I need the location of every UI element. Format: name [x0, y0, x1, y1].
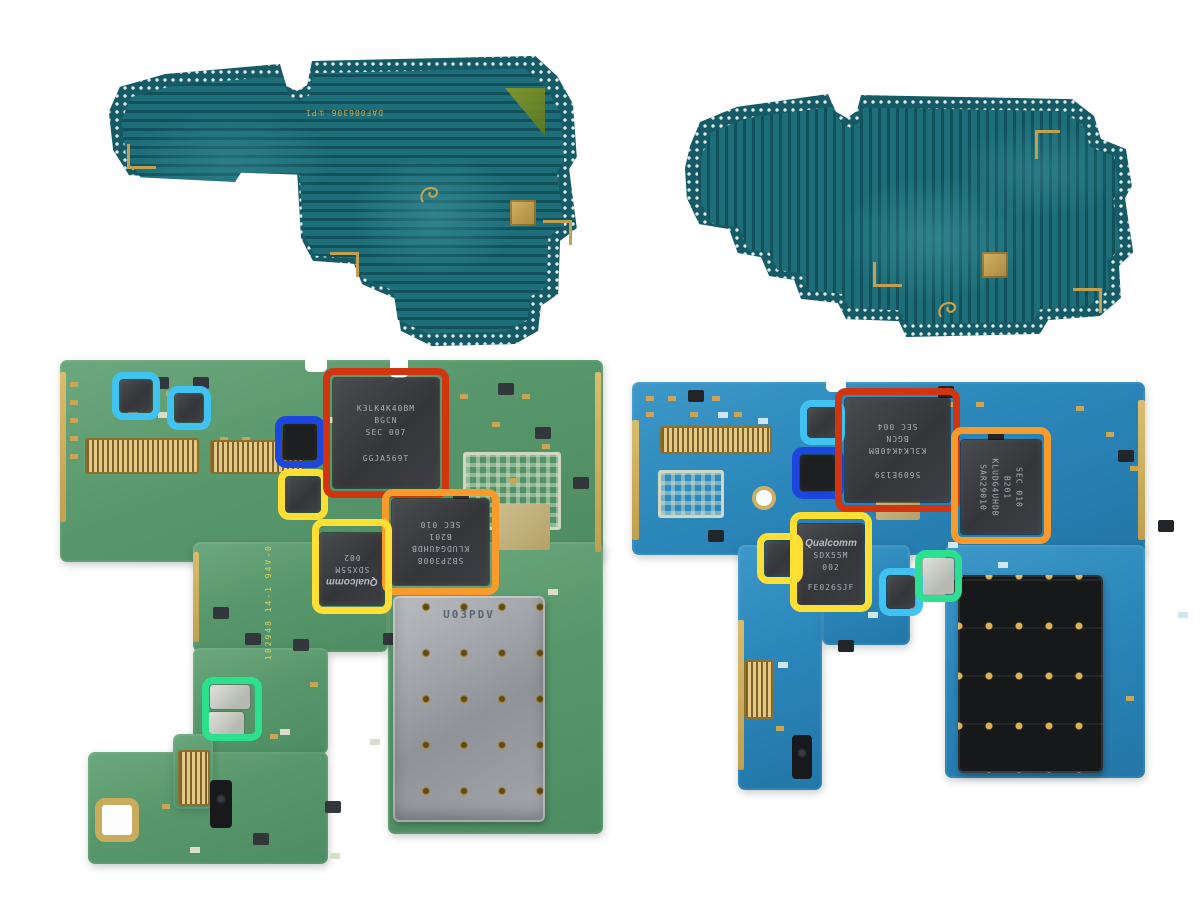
highlight-cyan-2-left	[167, 386, 211, 430]
sim-reader-right	[958, 575, 1103, 773]
camera-module	[792, 735, 812, 779]
highlight-green-left	[202, 677, 262, 741]
corner-bracket	[1073, 288, 1102, 313]
corner-bracket	[543, 220, 572, 245]
corner-bracket	[873, 262, 902, 287]
shield-can-frame	[658, 470, 724, 518]
b2b-connector	[85, 438, 199, 474]
board-edge-notch	[305, 356, 327, 372]
highlight-yellow-large-right	[790, 512, 872, 612]
pcb-trace-area	[118, 65, 570, 337]
b2b-connector	[178, 750, 210, 806]
gold-pad	[498, 504, 550, 550]
gold-plated-edge	[60, 372, 66, 522]
gold-plated-edge	[595, 372, 601, 552]
b2b-connector	[744, 660, 774, 719]
component-scatter	[70, 382, 78, 387]
highlight-yellow-large-left	[312, 519, 392, 614]
corner-bracket	[330, 252, 359, 277]
pcb-trace-area	[698, 103, 1127, 329]
shield-pcb-left: DAF006306 ①P1	[105, 52, 583, 350]
component-scatter	[688, 390, 704, 402]
corner-bracket	[127, 144, 156, 169]
samsung-swoosh-logo-icon	[933, 295, 963, 325]
gold-plated-edge	[632, 420, 639, 540]
motherboard-right: 5609E139 K3LK4K40BM BGCN SEC 004 SEC 010…	[628, 360, 1148, 800]
highlight-green-right	[915, 550, 962, 602]
gold-pad	[982, 252, 1008, 278]
highlight-blue-left	[275, 416, 325, 468]
board-silkscreen: 182948 14-1 94V-0	[264, 544, 273, 660]
highlight-red-right	[835, 388, 960, 512]
gold-plated-edge	[193, 552, 199, 642]
silkscreen-label: DAF006306 ①P1	[305, 108, 383, 117]
highlight-orange-right	[951, 427, 1051, 544]
highlight-orange-left	[382, 489, 499, 595]
gold-pad	[510, 200, 536, 226]
pcb-hole	[752, 486, 776, 510]
b2b-connector	[660, 426, 772, 454]
highlight-cyan-1-left	[112, 372, 160, 420]
motherboard-left: 182948 14-1 94V-0 K3LK4K40BM BGCN SEC 00…	[58, 352, 603, 877]
teardown-photo: DAF006306 ①P1	[0, 0, 1200, 900]
highlight-yellow-small-left	[278, 469, 328, 520]
component-scatter	[718, 412, 728, 418]
sim-reader-label: U03PDV	[393, 608, 545, 621]
screw-hole	[95, 798, 139, 842]
highlight-red-left	[323, 368, 449, 498]
component-scatter	[646, 396, 654, 401]
samsung-swoosh-logo-icon	[415, 180, 445, 210]
sim-reader-left: U03PDV	[393, 596, 545, 822]
shield-pcb-right	[685, 90, 1140, 342]
corner-bracket	[1035, 130, 1060, 159]
gold-plated-edge	[1138, 400, 1145, 540]
camera-module	[210, 780, 232, 828]
